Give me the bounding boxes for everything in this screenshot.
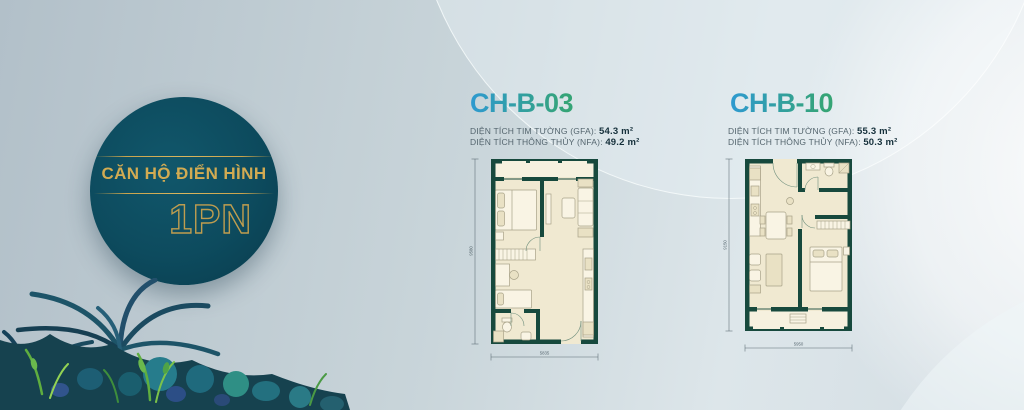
- gold-divider-top: [94, 156, 274, 157]
- plan-gfa-line: DIỆN TÍCH TIM TƯỜNG (GFA): 54.3 m²: [470, 126, 646, 137]
- plan-title: CH-B-03: [470, 88, 646, 119]
- apartment-type-badge: CĂN HỘ ĐIỂN HÌNH 1PN: [90, 97, 278, 285]
- floor-plan-ch-b-10: 9150: [720, 154, 870, 359]
- gfa-value: 55.3 m²: [857, 126, 891, 137]
- gfa-label: DIỆN TÍCH TIM TƯỜNG (GFA):: [728, 126, 854, 136]
- plan-card-ch-b-10: CH-B-10 DIỆN TÍCH TIM TƯỜNG (GFA): 55.3 …: [720, 88, 900, 359]
- stage: CĂN HỘ ĐIỂN HÌNH 1PN CH-B-03 DIỆN TÍCH T…: [0, 0, 1024, 410]
- nfa-label: DIỆN TÍCH THÔNG THỦY (NFA):: [728, 137, 861, 147]
- plan2-height-dimension: 9150: [723, 240, 728, 250]
- gfa-label: DIỆN TÍCH TIM TƯỜNG (GFA):: [470, 126, 596, 136]
- plan1-width-dimension: 5835: [540, 351, 550, 356]
- plan2-width-dimension: 5950: [794, 342, 804, 347]
- gold-divider-bottom: [94, 193, 274, 194]
- floor-plan-ch-b-03: 9580: [466, 154, 616, 366]
- plan-gfa-line: DIỆN TÍCH TIM TƯỜNG (GFA): 55.3 m²: [728, 126, 900, 137]
- plan-card-ch-b-03: CH-B-03 DIỆN TÍCH TIM TƯỜNG (GFA): 54.3 …: [466, 88, 646, 366]
- plan1-height-dimension: 9580: [469, 246, 474, 256]
- badge-subtitle: 1PN: [169, 196, 252, 243]
- nfa-value: 49.2 m²: [605, 137, 639, 148]
- nfa-value: 50.3 m²: [863, 137, 897, 148]
- plan-info: DIỆN TÍCH TIM TƯỜNG (GFA): 54.3 m² DIỆN …: [470, 126, 646, 148]
- nfa-label: DIỆN TÍCH THÔNG THỦY (NFA):: [470, 137, 603, 147]
- plan-title: CH-B-10: [730, 88, 900, 119]
- gfa-value: 54.3 m²: [599, 126, 633, 137]
- plan-nfa-line: DIỆN TÍCH THÔNG THỦY (NFA): 49.2 m²: [470, 137, 646, 148]
- plan-nfa-line: DIỆN TÍCH THÔNG THỦY (NFA): 50.3 m²: [728, 137, 900, 148]
- tropical-foliage: [0, 278, 380, 410]
- badge-title: CĂN HỘ ĐIỂN HÌNH: [90, 164, 278, 184]
- plan-info: DIỆN TÍCH TIM TƯỜNG (GFA): 55.3 m² DIỆN …: [728, 126, 900, 148]
